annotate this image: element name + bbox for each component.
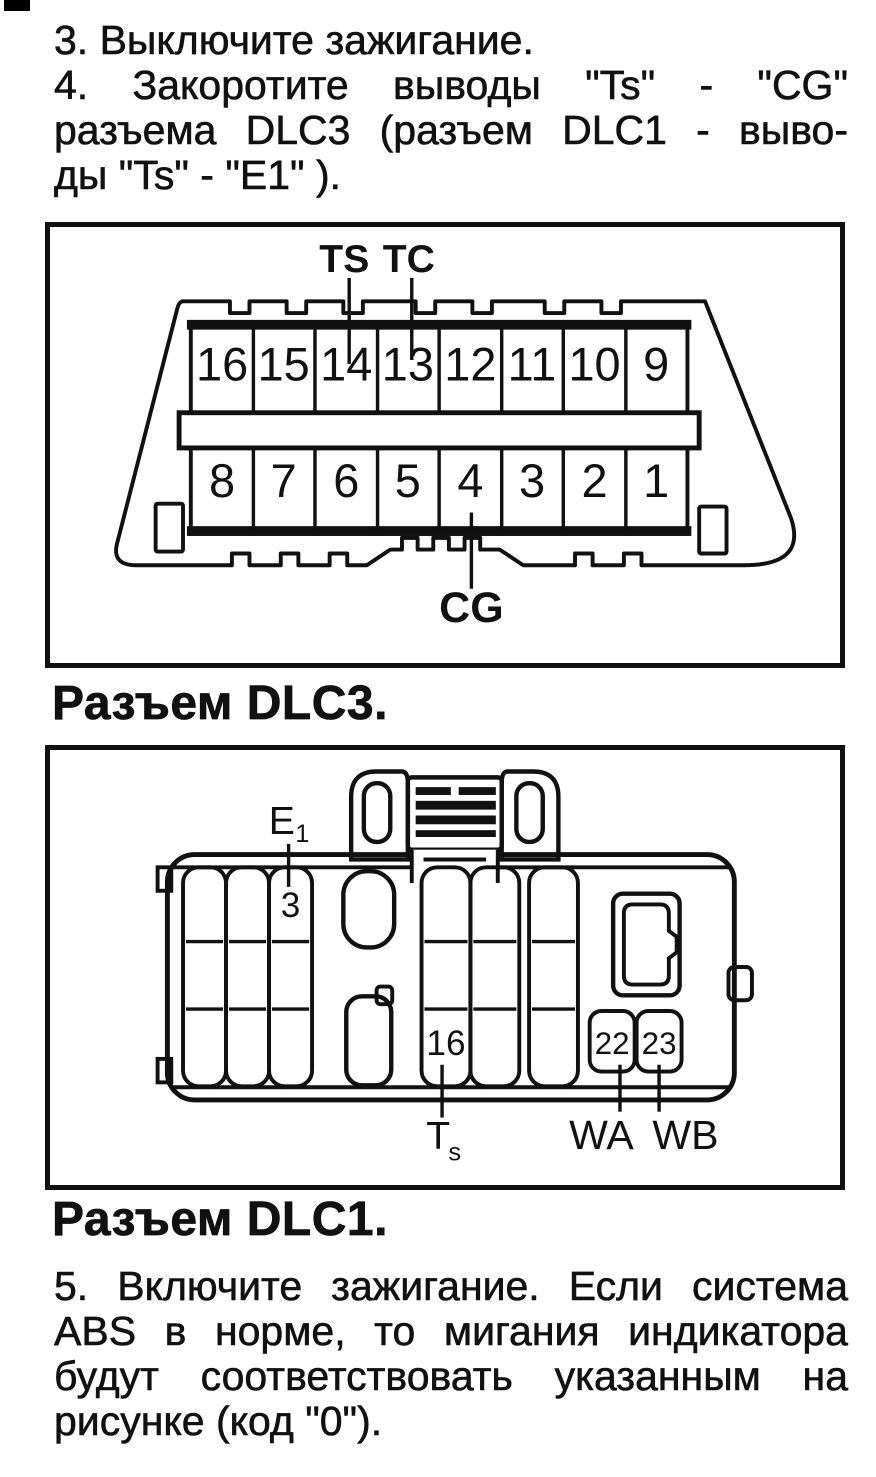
- step4-line-1: 4. Закоротите выводы "Ts" - "CG": [54, 63, 848, 108]
- dlc3-pin-row-top: 16 15 14 13 12 11 10 9: [187, 320, 691, 413]
- latch-grip-stripes: [416, 787, 496, 837]
- latch-left-slot: [364, 783, 390, 842]
- pin-15: 15: [258, 338, 310, 390]
- instruction-steps-3-4: 3. Выключите зажигание. 4. Закоротите вы…: [54, 18, 848, 198]
- pin-16: 16: [196, 338, 248, 390]
- pin-11: 11: [508, 338, 557, 390]
- step3-line: 3. Выключите зажигание.: [54, 18, 848, 63]
- dlc1-lower-slot: [346, 987, 392, 1086]
- pin-4: 4: [457, 455, 483, 507]
- scan-artifact: [4, 0, 30, 11]
- dlc1-connector-diagram: 3 16 22 23 E 1 T s WA WB: [50, 750, 840, 1185]
- ts-label: TS: [319, 238, 369, 281]
- pin-8: 8: [209, 455, 235, 507]
- pin-9: 9: [643, 338, 669, 390]
- e1-label-subscript: 1: [295, 820, 309, 848]
- dlc1-body-outline: [167, 855, 734, 1100]
- tc-label: TC: [383, 238, 435, 281]
- pin-14: 14: [320, 338, 372, 390]
- cg-label: CG: [439, 584, 503, 632]
- step5-line-3: будут соответствовать указанным на: [54, 1354, 848, 1399]
- pin-3-cell-number: 3: [281, 886, 301, 925]
- pin-5: 5: [395, 455, 421, 507]
- dlc1-keyed-opening: [613, 894, 679, 996]
- step4-line-3: ды "Ts" - "E1" ).: [54, 153, 848, 198]
- e1-label: E: [269, 800, 295, 843]
- dlc1-oval-slot: [343, 871, 394, 947]
- ts-label-subscript: s: [448, 1139, 461, 1167]
- pin-2: 2: [582, 455, 608, 507]
- pin-13: 13: [382, 338, 434, 390]
- pin-23-cell-number: 23: [642, 1026, 677, 1061]
- dlc1-pins-22-23: 22 23: [590, 1011, 682, 1072]
- dlc3-caption: Разъем DLC3.: [52, 676, 388, 731]
- dlc3-right-slot: [699, 507, 726, 554]
- pin-7: 7: [271, 455, 297, 507]
- dlc1-cell-group-left: 3: [183, 867, 312, 1086]
- step5-line-2: ABS в норме, то мигания индикатора: [54, 1309, 848, 1354]
- dlc3-pin-row-bottom: 8 7 6 5 4 3 2 1: [187, 448, 691, 536]
- dlc3-center-bar: [179, 413, 699, 448]
- dlc1-caption: Разъем DLC1.: [52, 1192, 388, 1247]
- latch-right-slot: [516, 783, 542, 842]
- ts-label: T: [426, 1115, 450, 1158]
- dlc1-connector-figure: 3 16 22 23 E 1 T s WA WB: [45, 745, 845, 1190]
- manual-page: { "page": {"background": "#ffffff", "ink…: [0, 0, 876, 1477]
- pin-22-cell-number: 22: [595, 1026, 630, 1061]
- dlc1-cell-group-middle: 16: [422, 867, 520, 1086]
- step4-line-2: разъема DLC3 (разъем DLC1 - выво-: [54, 108, 848, 153]
- pin-1: 1: [643, 455, 669, 507]
- instruction-step-5: 5. Включите зажигание. Если система ABS …: [54, 1264, 848, 1444]
- pin-3: 3: [519, 455, 545, 507]
- dlc3-connector-figure: 16 15 14 13 12 11 10 9 8 7 6 5 4 3 2 1 T…: [45, 222, 845, 668]
- dlc1-cell-group-right: [529, 867, 578, 1086]
- pin-10: 10: [568, 338, 620, 390]
- wa-label: WA: [569, 1112, 634, 1158]
- dlc3-left-slot: [156, 504, 183, 552]
- step5-line-1: 5. Включите зажигание. Если система: [54, 1264, 848, 1309]
- wb-label: WB: [652, 1112, 718, 1158]
- dlc3-terminal-labels: TS TC CG: [319, 238, 503, 632]
- dlc3-connector-diagram: 16 15 14 13 12 11 10 9 8 7 6 5 4 3 2 1 T…: [50, 227, 840, 663]
- step5-line-4: рисунке (код "0").: [54, 1399, 848, 1444]
- pin-6: 6: [333, 455, 359, 507]
- pin-16-cell-number: 16: [426, 1024, 465, 1063]
- pin-12: 12: [444, 338, 496, 390]
